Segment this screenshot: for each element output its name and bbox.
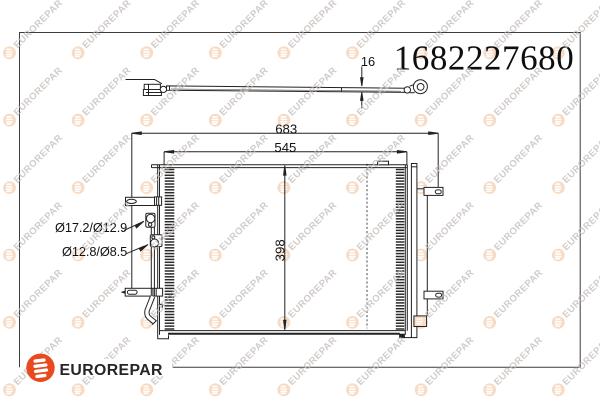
svg-text:545: 545 — [274, 140, 296, 155]
svg-text:EUROREPAR: EUROREPAR — [60, 362, 164, 379]
svg-text:398: 398 — [273, 239, 288, 261]
svg-text:683: 683 — [275, 121, 297, 136]
svg-text:16: 16 — [361, 54, 375, 69]
svg-text:1682227680: 1682227680 — [394, 39, 575, 78]
